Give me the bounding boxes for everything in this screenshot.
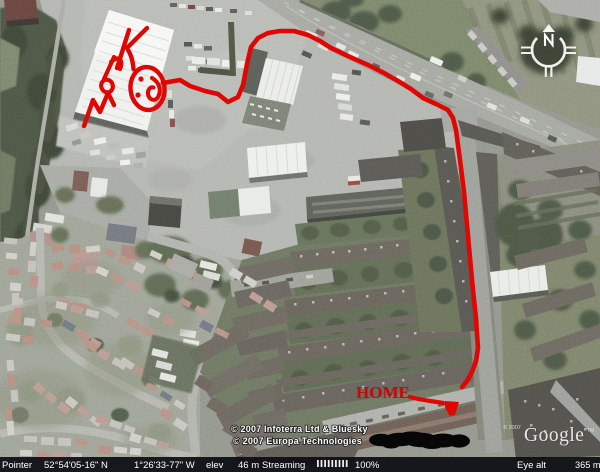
svg-text:365 m: 365 m (575, 460, 600, 470)
svg-text:52°54'05-16" N: 52°54'05-16" N (44, 460, 108, 471)
svg-text:HOME: HOME (356, 383, 410, 402)
svg-text:100%: 100% (355, 460, 380, 471)
svg-text:46 m: 46 m (238, 460, 259, 471)
svg-text:1°26'33-77" W: 1°26'33-77" W (134, 460, 195, 471)
svg-text:© 2007 Infoterra Ltd & Bluesky: © 2007 Infoterra Ltd & Bluesky (231, 424, 368, 434)
svg-text:Google: Google (524, 425, 584, 446)
svg-text:© 2007 Europa Technologies: © 2007 Europa Technologies (233, 436, 362, 446)
svg-text:Eye alt: Eye alt (517, 460, 546, 471)
svg-text:© 2007: © 2007 (503, 424, 521, 431)
svg-text:elev: elev (206, 460, 224, 471)
svg-text:Pointer: Pointer (2, 460, 32, 471)
svg-text:TM: TM (587, 428, 594, 434)
svg-text:Streaming: Streaming (262, 460, 305, 471)
